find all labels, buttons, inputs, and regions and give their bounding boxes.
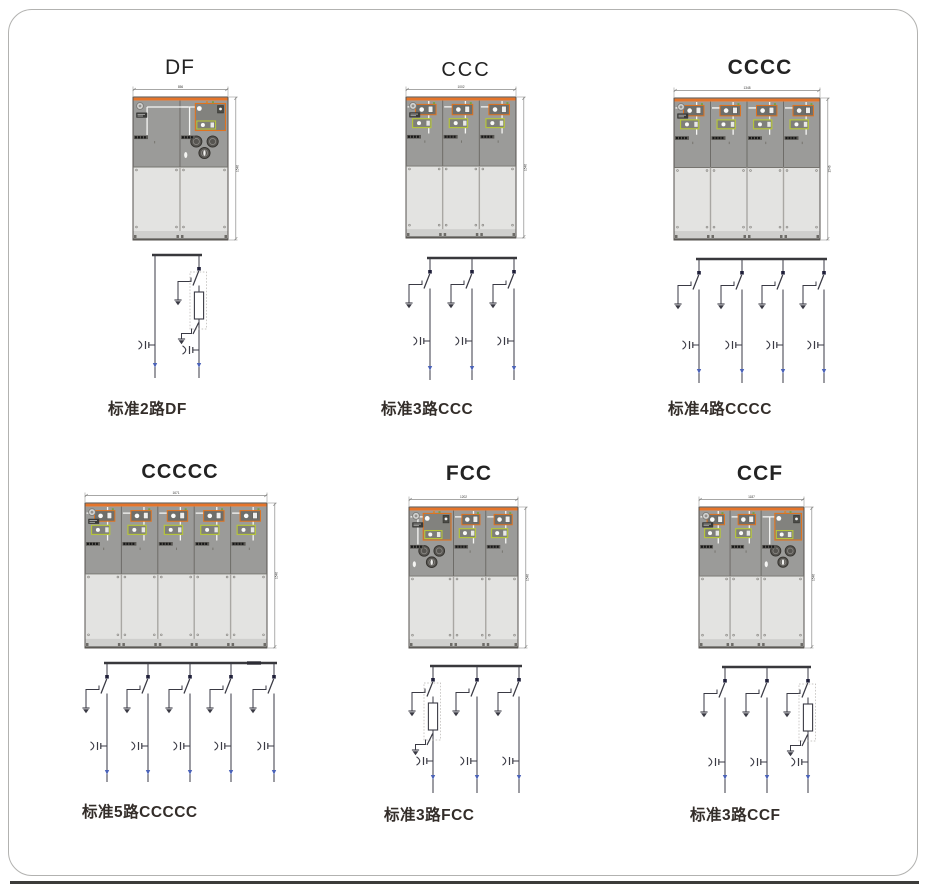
svg-text:1671: 1671: [172, 491, 179, 495]
drawing-cccc: 13481546: [630, 40, 905, 432]
svg-text:1187: 1187: [748, 495, 755, 499]
drawing-fcc: 12021546: [370, 448, 640, 850]
unit-title-fcc: FCC: [446, 462, 492, 486]
unit-title-ccf: CCF: [737, 462, 783, 486]
unit-caption-df: 标准2路DF: [108, 397, 187, 419]
unit-title-ccc: CCC: [441, 59, 490, 82]
single-line-circuit: [700, 667, 815, 793]
svg-text:1546: 1546: [526, 574, 530, 581]
unit-df: 8561546DF标准2路DF: [80, 40, 350, 432]
svg-text:1546: 1546: [236, 165, 240, 172]
unit-ccf: 11871546CCF标准3路CCF: [650, 448, 922, 850]
cabinet-front-view: 13481546: [674, 86, 832, 240]
single-line-circuit: [405, 258, 517, 380]
cabinet-front-view: 11871546: [699, 495, 816, 648]
single-line-circuit: [139, 255, 207, 378]
unit-caption-cccc: 标准4路CCCC: [668, 397, 772, 419]
bottom-border-line: [10, 881, 919, 884]
unit-caption-fcc: 标准3路FCC: [384, 803, 474, 825]
cabinet-front-view: 10021546: [406, 85, 528, 238]
cabinet-front-view: 12021546: [409, 495, 530, 648]
unit-ccccc: 16711546CCCCC标准5路CCCCC: [50, 448, 350, 850]
unit-caption-ccc: 标准3路CCC: [381, 397, 473, 419]
unit-title-ccccc: CCCCC: [141, 461, 218, 484]
single-line-circuit: [408, 666, 522, 793]
unit-fcc: 12021546FCC标准3路FCC: [370, 448, 640, 850]
unit-caption-ccf: 标准3路CCF: [690, 803, 780, 825]
unit-caption-ccccc: 标准5路CCCCC: [82, 800, 198, 822]
drawing-ccc: 10021546: [350, 40, 620, 432]
unit-cccc: 13481546CCCC标准4路CCCC: [630, 40, 905, 432]
single-line-circuit: [674, 259, 827, 383]
cabinet-front-view: 8561546: [133, 85, 240, 240]
svg-text:1002: 1002: [457, 85, 464, 89]
drawing-ccf: 11871546: [650, 448, 922, 850]
single-line-circuit: [82, 661, 277, 782]
svg-text:1546: 1546: [524, 164, 528, 171]
svg-text:1546: 1546: [275, 572, 279, 579]
catalog-page: 8561546DF标准2路DF10021546CCC标准3路CCC1348154…: [0, 0, 929, 888]
svg-text:1546: 1546: [828, 165, 832, 172]
drawing-ccccc: 16711546: [50, 448, 350, 850]
svg-text:1546: 1546: [812, 574, 816, 581]
drawing-df: 8561546: [80, 40, 350, 432]
svg-text:1348: 1348: [743, 86, 750, 90]
unit-title-df: DF: [165, 56, 195, 80]
unit-title-cccc: CCCC: [728, 56, 793, 80]
cabinet-front-view: 16711546: [85, 491, 279, 648]
svg-text:856: 856: [178, 85, 184, 89]
unit-ccc: 10021546CCC标准3路CCC: [350, 40, 620, 432]
svg-text:1202: 1202: [460, 495, 467, 499]
